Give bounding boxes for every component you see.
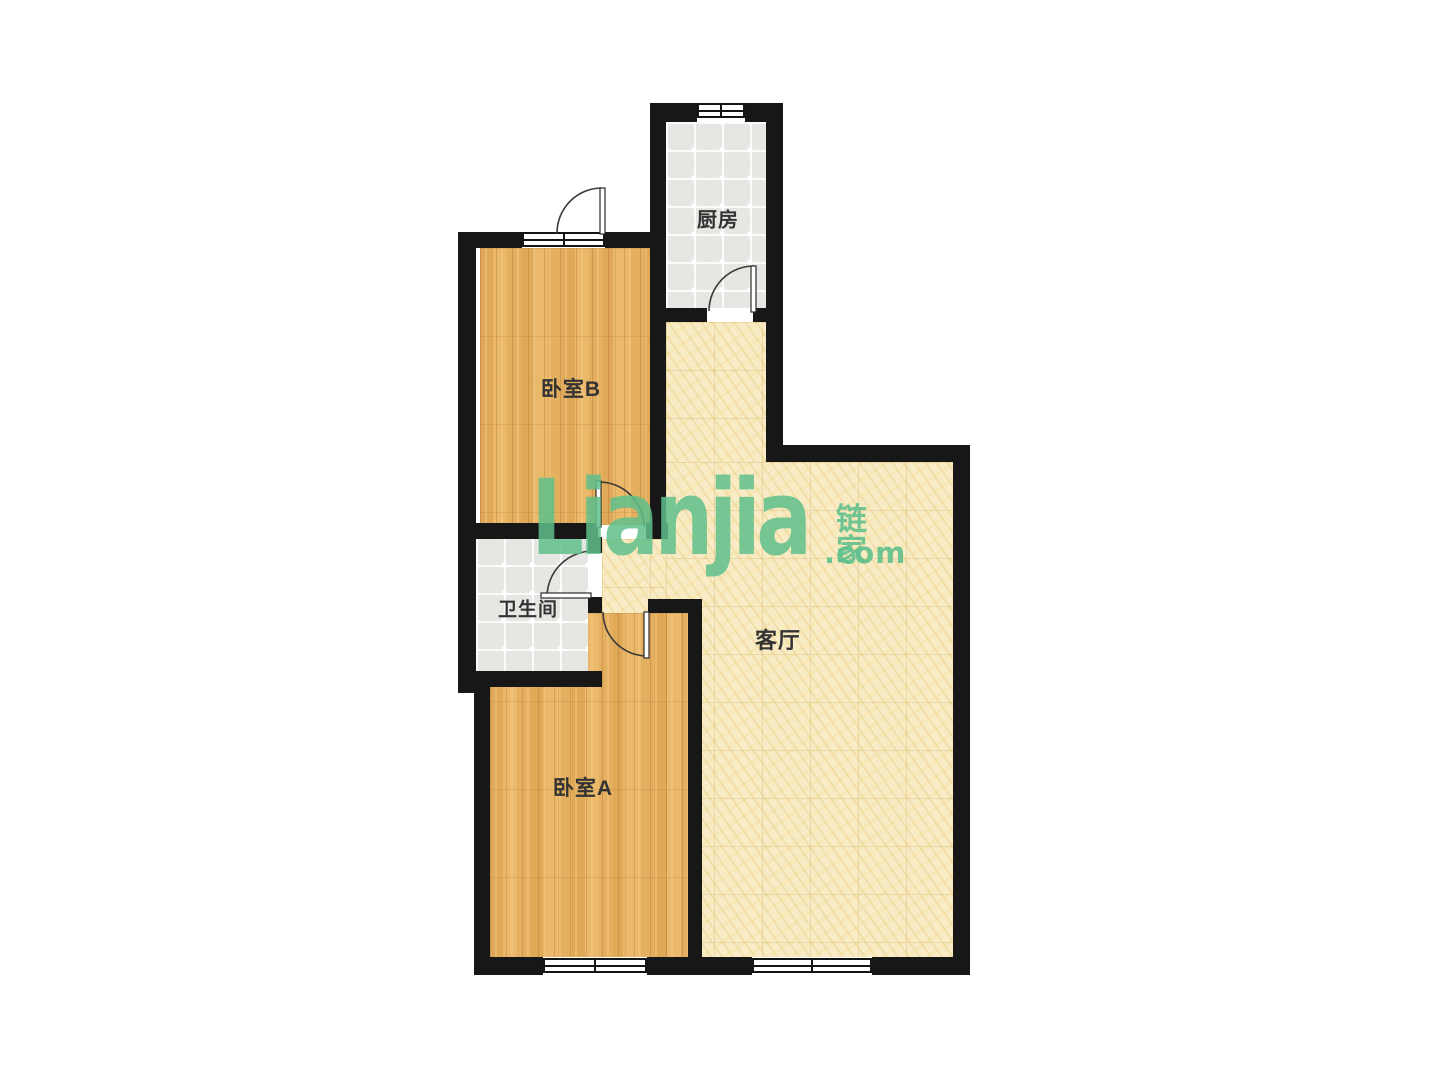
bedroom-a-door-arc	[603, 612, 647, 656]
kitchen-door-arc	[709, 266, 754, 311]
entry-door-arc	[557, 188, 602, 233]
bedroom-b-door-leaf	[596, 481, 601, 527]
kitchen-label: 厨房	[697, 204, 739, 233]
bathroom-label: 卫生间	[498, 595, 558, 622]
door-symbols	[0, 0, 1440, 1080]
floor-plan: 厨房 卧室B 卫生间 卧室A 客厅 Lianjia 链家 .com	[0, 0, 1440, 1080]
bathroom-door-arc	[547, 551, 593, 597]
entry-door-leaf	[600, 188, 605, 234]
living-room-label: 客厅	[755, 623, 801, 655]
bedroom-b-door-arc	[599, 482, 644, 527]
bedroom-a-door-leaf	[644, 612, 649, 658]
kitchen-door-leaf	[751, 266, 756, 312]
bedroom-a-label: 卧室A	[553, 772, 613, 802]
bedroom-b-label: 卧室B	[541, 373, 601, 403]
